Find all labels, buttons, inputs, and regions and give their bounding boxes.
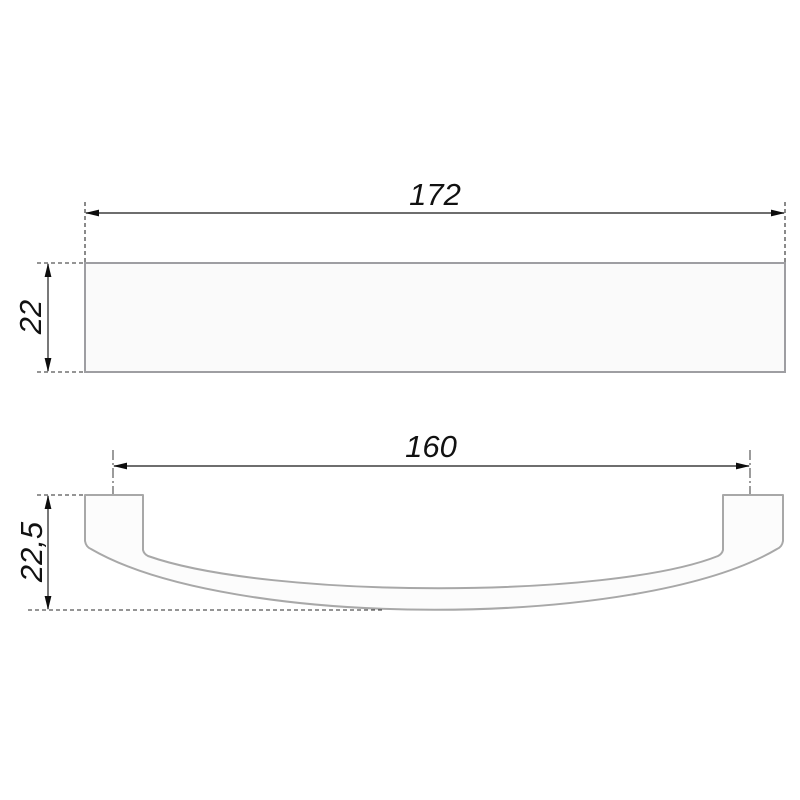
- handle-front-profile: [85, 495, 783, 610]
- arrow-up-icon: [45, 495, 52, 509]
- front-view-spacing-dimension-label: 160: [405, 429, 457, 464]
- front-view: 160 22,5: [14, 429, 783, 610]
- arrow-down-icon: [45, 358, 52, 372]
- top-view-length-dimension-label: 172: [409, 177, 461, 212]
- front-view-height-dimension-label: 22,5: [14, 521, 49, 583]
- technical-drawing-canvas: 172 22 160: [0, 0, 800, 800]
- top-view: 172 22: [13, 177, 785, 372]
- arrow-left-icon: [85, 210, 99, 217]
- arrow-down-icon: [45, 596, 52, 610]
- arrow-up-icon: [45, 263, 52, 277]
- arrow-left-icon: [113, 463, 127, 470]
- arrow-right-icon: [736, 463, 750, 470]
- handle-top-profile: [85, 263, 785, 372]
- arrow-right-icon: [771, 210, 785, 217]
- top-view-height-dimension-label: 22: [13, 300, 48, 335]
- technical-drawing-page: 172 22 160: [0, 0, 800, 800]
